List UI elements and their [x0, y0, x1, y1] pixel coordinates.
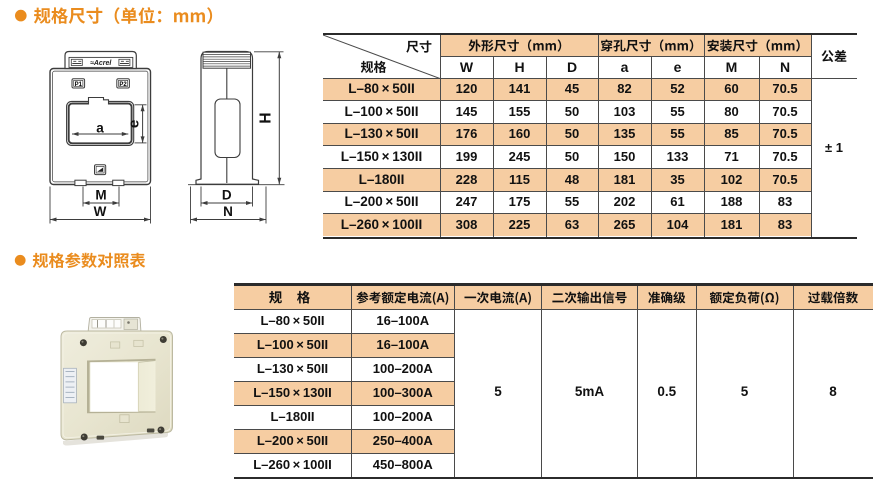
- svg-text:H: H: [258, 112, 275, 123]
- svg-text:P1: P1: [75, 82, 83, 88]
- svg-text:≈Acrel: ≈Acrel: [90, 60, 112, 67]
- svg-text:W: W: [94, 204, 107, 219]
- svg-text:D: D: [222, 188, 232, 203]
- svg-text:e: e: [126, 120, 143, 128]
- svg-text:N: N: [223, 204, 233, 219]
- svg-text:a: a: [96, 121, 104, 136]
- svg-text:M: M: [95, 188, 106, 203]
- svg-text:P2: P2: [119, 82, 127, 88]
